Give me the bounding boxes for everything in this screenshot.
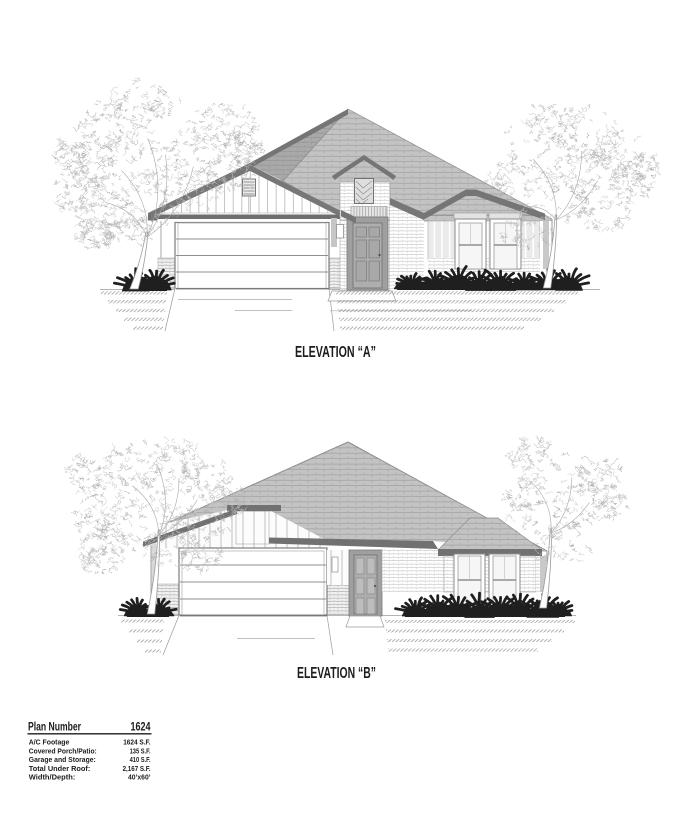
svg-text:Garage and Storage:: Garage and Storage: — [29, 755, 96, 764]
svg-text:410 S.F.: 410 S.F. — [130, 755, 151, 764]
svg-text:1624: 1624 — [131, 722, 151, 734]
svg-text:2,167 S.F.: 2,167 S.F. — [123, 764, 151, 773]
svg-text:40ʼx60ʼ: 40ʼx60ʼ — [128, 773, 151, 782]
svg-text:ELEVATION “B”: ELEVATION “B” — [297, 665, 376, 682]
svg-text:Plan Number: Plan Number — [28, 722, 81, 734]
svg-text:Covered Porch/Patio:: Covered Porch/Patio: — [29, 746, 97, 755]
svg-text:Width/Depth:: Width/Depth: — [29, 773, 76, 782]
svg-text:A/C Footage: A/C Footage — [29, 738, 70, 747]
svg-text:1624 S.F.: 1624 S.F. — [123, 738, 150, 747]
svg-text:ELEVATION “A”: ELEVATION “A” — [295, 344, 376, 361]
svg-text:Total Under Roof:: Total Under Roof: — [29, 764, 91, 773]
svg-text:135 S.F.: 135 S.F. — [130, 746, 151, 755]
